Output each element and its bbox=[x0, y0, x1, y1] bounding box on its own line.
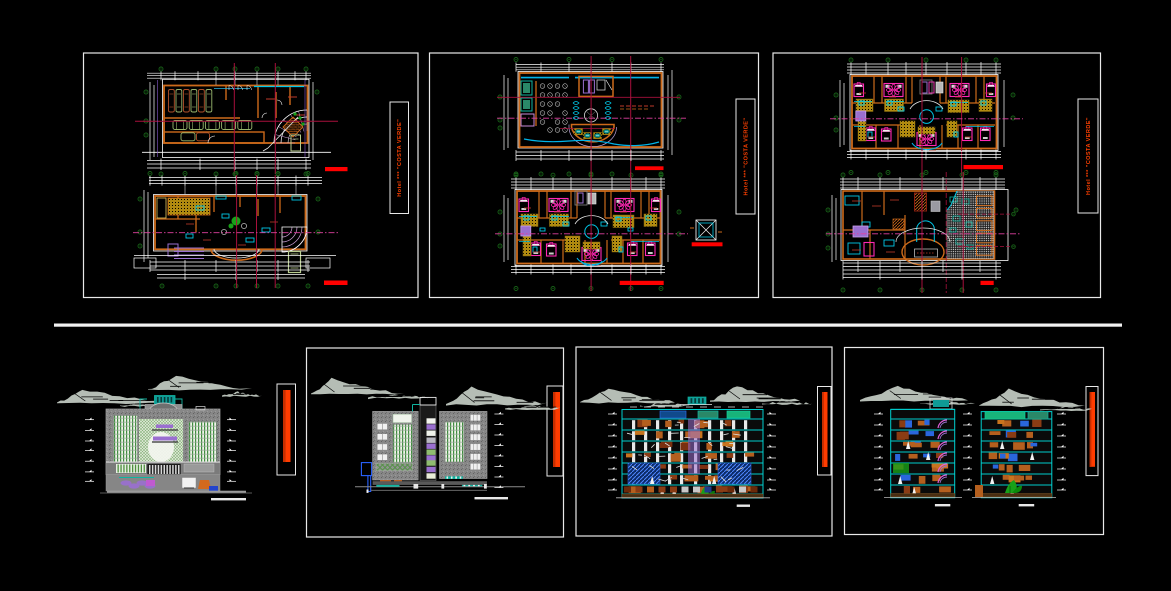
svg-text:Hotel *** "COSTA VERDE": Hotel *** "COSTA VERDE" bbox=[1086, 117, 1092, 195]
svg-text:Hotel *** "COSTA VERDE": Hotel *** "COSTA VERDE" bbox=[744, 118, 750, 196]
svg-text:Hotel *** "COSTA VERDE": Hotel *** "COSTA VERDE" bbox=[397, 119, 403, 197]
